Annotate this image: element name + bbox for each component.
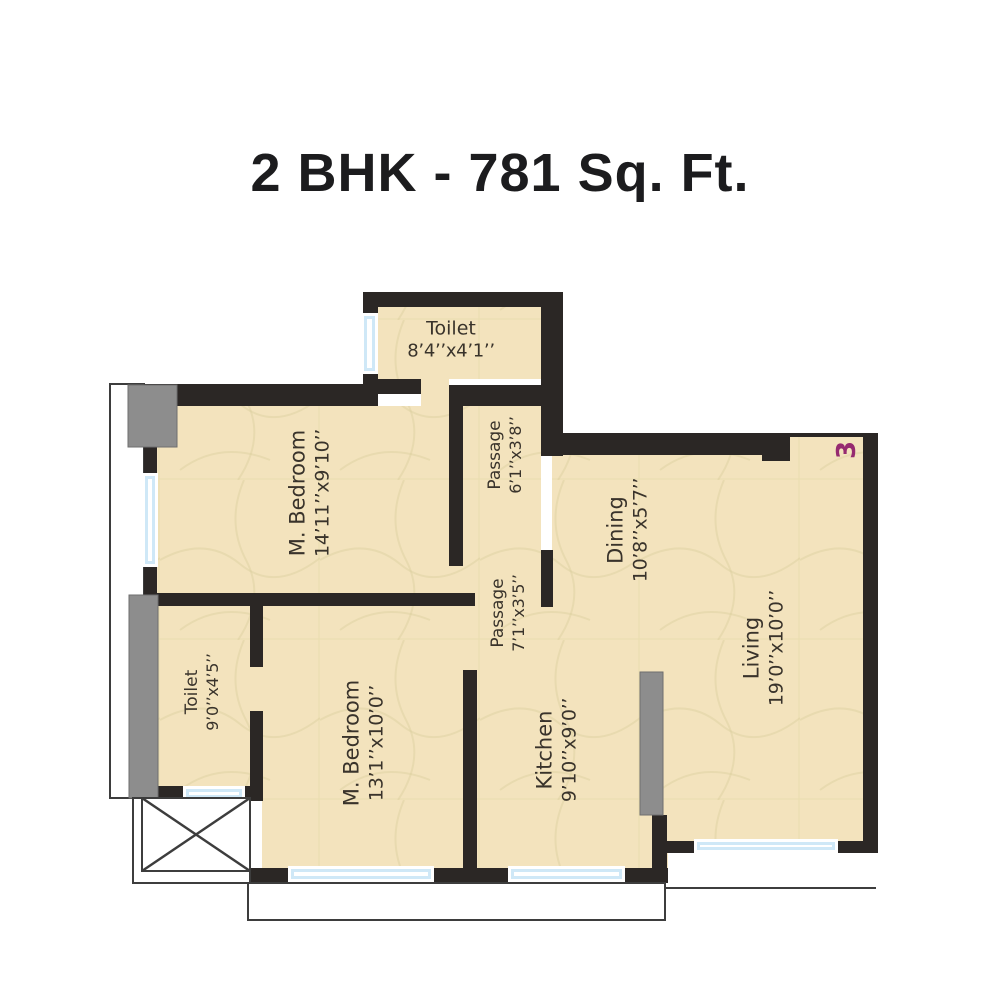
unit-number: 3	[832, 441, 862, 459]
room-dims: 6’1’’x3’8’’	[506, 416, 526, 493]
gray-ledge-top-left	[128, 385, 177, 447]
floor-dining	[552, 455, 863, 605]
room-name: Dining	[604, 478, 630, 582]
open-duct-x-box	[133, 798, 250, 883]
gray-ledge-left	[129, 595, 158, 798]
room-dims: 8’4’’x4’1’’	[407, 341, 495, 363]
room-label-passage-lower: Passage 7’1’’x3’5’’	[488, 574, 528, 651]
floor-toilet-top-door	[421, 379, 449, 406]
room-label-m-bedroom-top: M. Bedroom 14’11’’x9’10’’	[286, 429, 335, 557]
bottom-chajja-outline	[248, 883, 665, 920]
room-dims: 7’1’’x3’5’’	[509, 574, 529, 651]
room-name: M. Bedroom	[286, 429, 312, 557]
window-toilet-top	[361, 313, 378, 374]
room-label-dining: Dining 10’8’’x5’7’’	[604, 478, 653, 582]
room-label-kitchen: Kitchen 9’10’’x9’0’’	[533, 698, 582, 802]
room-name: Toilet	[407, 317, 495, 340]
room-dims: 10’8’’x5’7’’	[629, 478, 652, 582]
room-label-passage-top: Passage 6’1’’x3’8’’	[485, 416, 525, 493]
floor-toilet-left-door	[250, 667, 263, 711]
window-kitchen	[508, 866, 625, 882]
window-m-bedroom-bottom	[288, 866, 434, 882]
room-name: Passage	[485, 416, 506, 493]
room-name: M. Bedroom	[340, 680, 366, 806]
room-dims: 14’11’’x9’10’’	[311, 429, 334, 557]
room-label-toilet-left: Toilet 9’0’’x4’5’’	[182, 653, 222, 730]
room-name: Toilet	[182, 653, 203, 730]
room-label-living: Living 19’0’’x10’0’’	[740, 590, 789, 706]
room-name: Kitchen	[533, 698, 559, 802]
room-dims: 19’0’’x10’0’’	[765, 590, 788, 706]
room-label-m-bedroom-bottom: M. Bedroom 13’1’’x10’0’’	[340, 680, 389, 806]
room-dims: 9’10’’x9’0’’	[558, 698, 581, 802]
floor-plan-page: 2 BHK - 781 Sq. Ft.	[0, 0, 1000, 1000]
room-label-toilet-top: Toilet 8’4’’x4’1’’	[407, 317, 495, 362]
gray-kitchen-platform	[640, 672, 663, 815]
room-dims: 13’1’’x10’0’’	[365, 680, 388, 806]
room-dims: 9’0’’x4’5’’	[203, 653, 223, 730]
floor-bedroom-top-door	[449, 566, 463, 593]
room-name: Passage	[488, 574, 509, 651]
window-living	[694, 839, 838, 853]
window-m-bedroom-top	[142, 473, 158, 567]
floor-plan-drawing	[0, 0, 1000, 1000]
room-name: Living	[740, 590, 766, 706]
